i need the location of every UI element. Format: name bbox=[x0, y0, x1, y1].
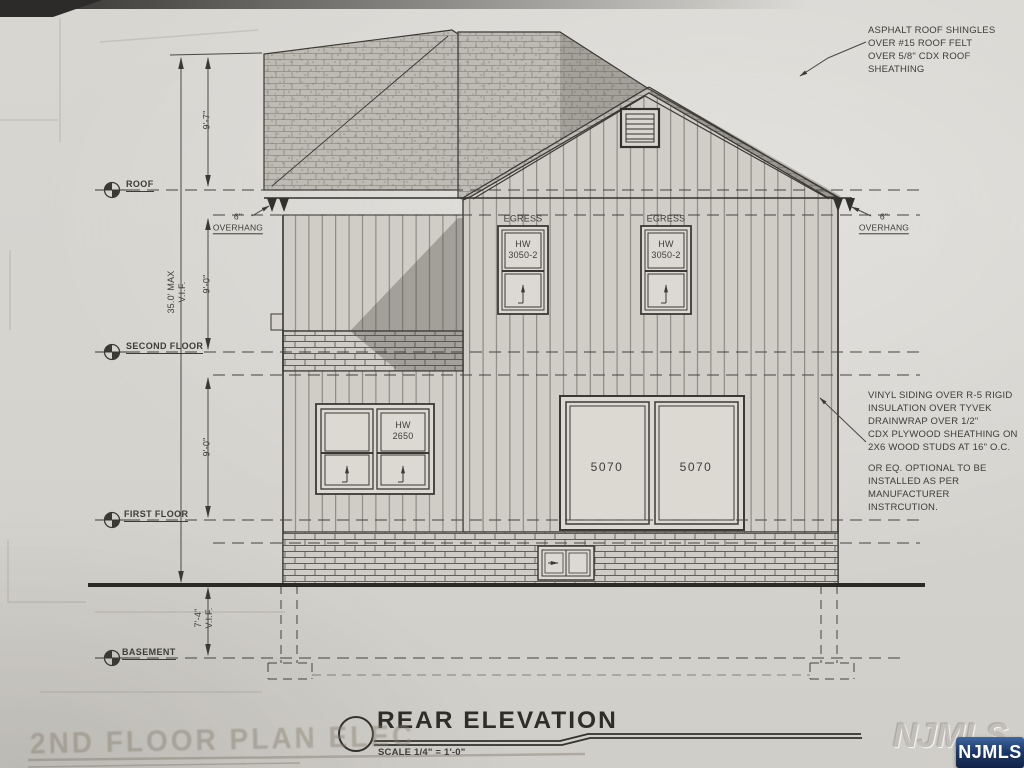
dim-ridge-to-roof: 9'-7" bbox=[201, 111, 212, 130]
door-size-left: 5070 bbox=[591, 460, 624, 476]
njmls-logo-badge: NJMLS bbox=[956, 737, 1024, 768]
egress-label-right: EGRESS bbox=[647, 213, 686, 224]
level-label-roof: ROOF bbox=[126, 179, 154, 192]
window-size-hw2650: HW 2650 bbox=[393, 420, 414, 443]
dim-overall-max: 35.0' MAX V.I.F. bbox=[166, 270, 189, 313]
egress-label-left: EGRESS bbox=[504, 213, 543, 224]
overhang-label-left: 6" OVERHANG bbox=[213, 211, 263, 234]
photo-edge-shadow bbox=[0, 0, 880, 9]
siding-assembly-note: VINYL SIDING OVER R-5 RIGID INSULATION O… bbox=[868, 389, 1024, 454]
level-label-second-floor: SECOND FLOOR bbox=[126, 341, 203, 354]
door-size-right: 5070 bbox=[680, 460, 713, 476]
attic-vent bbox=[621, 109, 659, 147]
footing-dashed-lines bbox=[268, 585, 854, 679]
dim-roof-to-second: 9'-0" bbox=[201, 275, 212, 294]
first-floor-window bbox=[316, 404, 434, 494]
install-note: OR EQ. OPTIONAL TO BE INSTALLED AS PER M… bbox=[868, 462, 1024, 514]
njmls-logo-text: NJMLS bbox=[958, 742, 1022, 763]
level-datum-markers bbox=[95, 183, 129, 666]
dim-grade-to-basement: 7'-4" V.I.F. bbox=[193, 608, 216, 629]
dimension-lines bbox=[170, 53, 262, 655]
basement-window bbox=[538, 546, 594, 580]
overhang-label-right: 6" OVERHANG bbox=[859, 211, 909, 234]
dim-second-to-first: 9'-0" bbox=[201, 438, 212, 457]
photo-of-blueprint: { "colors": { "paper": "#d5d3ce", "ink":… bbox=[0, 0, 1024, 768]
roof-assembly-note: ASPHALT ROOF SHINGLES OVER #15 ROOF FELT… bbox=[868, 24, 1023, 76]
egress-size-right: HW 3050-2 bbox=[651, 239, 680, 262]
level-label-basement: BASEMENT bbox=[122, 647, 176, 660]
egress-size-left: HW 3050-2 bbox=[508, 239, 537, 262]
ghost-underlay-title: 2ND FLOOR PLAN ELEC bbox=[30, 717, 416, 764]
patio-doors bbox=[560, 396, 744, 530]
level-label-first-floor: FIRST FLOOR bbox=[124, 509, 188, 522]
ghost-bleedthrough-lines bbox=[0, 18, 285, 692]
